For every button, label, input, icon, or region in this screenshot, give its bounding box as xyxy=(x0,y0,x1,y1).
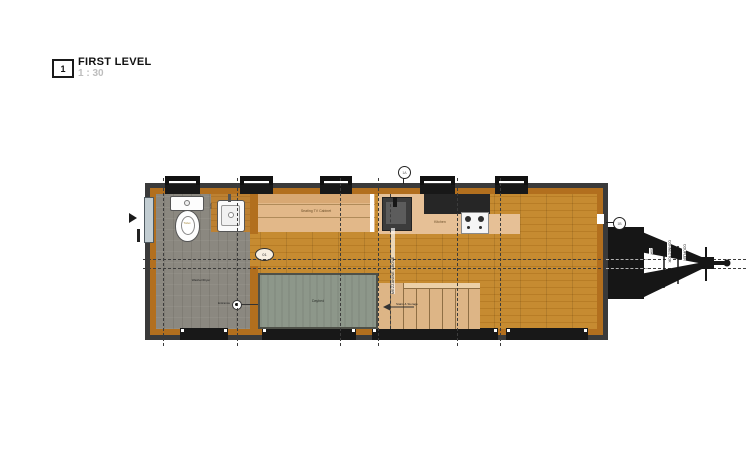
top-window xyxy=(320,184,352,194)
stairs-direction-arrow-icon xyxy=(380,301,416,313)
stove xyxy=(461,212,489,234)
coupler-ball-icon xyxy=(724,260,731,267)
toilet-label: Toilet xyxy=(174,221,200,225)
top-window xyxy=(420,184,455,194)
bottom-window xyxy=(262,328,356,340)
cabinet-back-band xyxy=(258,194,375,203)
lintel-mark xyxy=(420,176,455,181)
bottom-window xyxy=(506,328,588,340)
bottom-window xyxy=(372,328,498,340)
top-window xyxy=(240,184,273,194)
grid-line xyxy=(237,178,238,346)
hitch-arm-lower xyxy=(640,262,704,299)
grid-line xyxy=(500,178,501,346)
coupler-stem xyxy=(714,261,724,265)
kitchen-faucet-icon xyxy=(393,197,397,207)
section-arrow-icon xyxy=(129,213,137,223)
grid-line xyxy=(163,178,164,346)
sheet-title: FIRST LEVEL xyxy=(78,56,152,68)
sheet-number-box: 1 xyxy=(52,59,74,78)
daybed: Daybed xyxy=(258,273,378,329)
cabinet-gap xyxy=(370,194,374,232)
cabinet-shelf-line xyxy=(258,217,375,218)
section-marker-right: 1B xyxy=(613,217,626,230)
grid-line xyxy=(457,178,458,346)
hitch-front-member xyxy=(608,227,644,299)
hitch-label: COUPLER xyxy=(682,244,686,261)
center-line-over-hitch xyxy=(606,259,648,260)
trailer-hitch xyxy=(595,215,746,315)
washer-dryer-label: Washer/Dryer xyxy=(186,278,216,282)
cabinet-shelf-line xyxy=(258,204,375,205)
lintel-mark xyxy=(240,176,273,181)
hitch-label: 50A xyxy=(649,248,653,254)
toilet-flush-button xyxy=(184,200,190,206)
kitchen-label: Kitchen xyxy=(426,220,454,224)
sink-label: Sink xyxy=(209,203,213,227)
lintel-mark xyxy=(165,176,200,181)
grid-line xyxy=(378,178,379,346)
hitch-label: CONNECTOR xyxy=(667,240,671,263)
stair-nosing xyxy=(404,283,480,289)
sheet-scale: 1 : 30 xyxy=(78,68,104,79)
mezzanine-label: MEZZANINE ABOVE xyxy=(391,228,395,294)
drawing-sheet: 1 FIRST LEVEL 1 : 30 Toilet Sink Washer/… xyxy=(0,0,746,468)
burner-icon xyxy=(478,216,484,222)
burner-icon xyxy=(465,216,471,222)
burner-icon xyxy=(467,226,470,229)
daybed-label: Daybed xyxy=(312,299,324,303)
section-marker-top: 1A xyxy=(398,166,411,179)
entrance-label: Entrance xyxy=(198,301,230,305)
bottom-window xyxy=(180,328,228,340)
bath-sink-drain xyxy=(228,212,234,218)
center-line-over-hitch xyxy=(606,268,648,269)
burner-icon xyxy=(479,226,482,229)
top-window xyxy=(165,184,200,194)
interior-wall-upper xyxy=(250,194,258,234)
lintel-mark xyxy=(320,176,352,181)
seating-label: Seating TV Cabinet xyxy=(280,209,352,213)
toilet-seat xyxy=(181,216,195,235)
bath-faucet-icon xyxy=(228,194,231,202)
left-window xyxy=(144,197,154,243)
grid-line xyxy=(340,178,341,346)
left-wall-mark xyxy=(137,229,140,242)
interior-wall-lower xyxy=(250,266,258,329)
